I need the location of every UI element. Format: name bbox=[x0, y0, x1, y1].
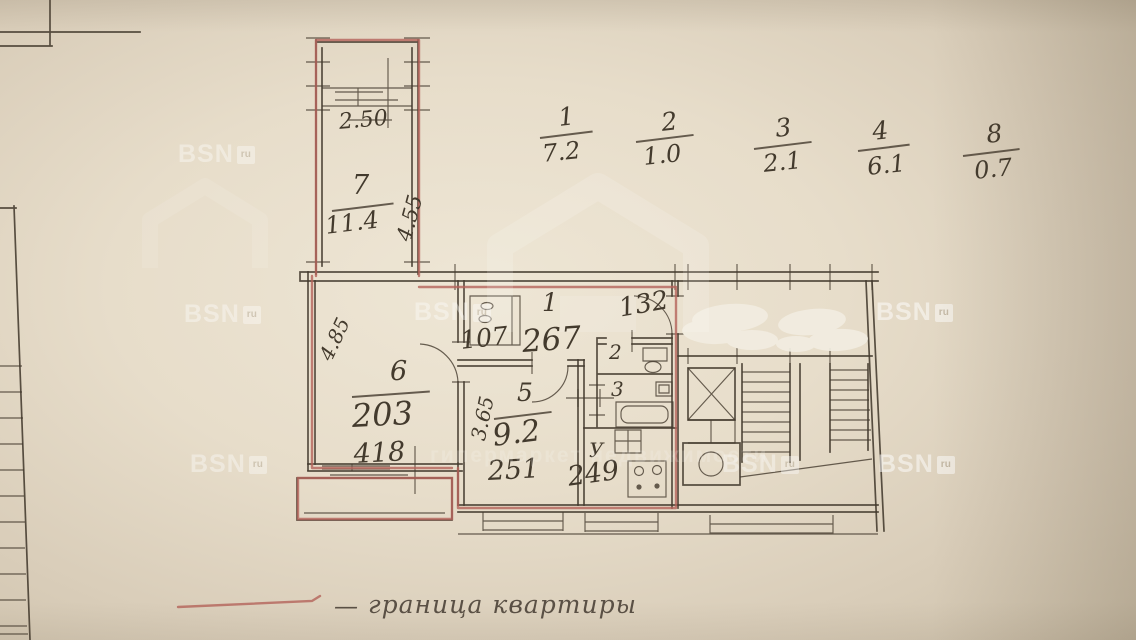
fraction-1-number: 1 bbox=[557, 103, 575, 130]
scanned-floor-plan-page: 1 7.2 2 1.0 3 2.1 4 6.1 8 0.7 2.50 7 11.… bbox=[0, 0, 1136, 640]
bsn-watermark: BSN ru bbox=[878, 452, 955, 477]
bsn-watermark: BSN ru bbox=[876, 300, 953, 325]
fraction-4-area: 6.1 bbox=[866, 151, 906, 179]
legend-dash: — bbox=[334, 592, 358, 620]
bsn-watermark-ru-icon: ru bbox=[237, 146, 255, 164]
toilet-bowl-icon bbox=[645, 362, 661, 373]
fraction-2-area: 1.0 bbox=[642, 141, 682, 169]
room6-width-dim: 418 bbox=[353, 438, 406, 468]
bottom-windows bbox=[458, 512, 878, 534]
hall-length-dim: 267 bbox=[521, 323, 582, 358]
fraction-4-number: 4 bbox=[871, 117, 889, 144]
room7-area: 11.4 bbox=[324, 207, 380, 237]
room6-area: 203 bbox=[351, 397, 414, 432]
bsn-watermark-text: BSN bbox=[178, 142, 234, 167]
fixtures bbox=[615, 348, 673, 497]
fraction-2-number: 2 bbox=[660, 108, 678, 135]
room7-number: 7 bbox=[352, 172, 369, 199]
room7-width-dim: 2.50 bbox=[338, 108, 389, 134]
fraction-3-area: 2.1 bbox=[762, 148, 802, 176]
sink-icon bbox=[656, 382, 672, 396]
hall-closet-dim: 107 bbox=[459, 323, 509, 353]
fraction-8-area: 0.7 bbox=[973, 155, 1013, 183]
fraction-3-number: 3 bbox=[774, 114, 792, 141]
stair-steps bbox=[742, 370, 871, 452]
room6-number: 6 bbox=[390, 358, 407, 385]
legend-boundary-sample-line bbox=[178, 596, 320, 607]
bsn-watermark: BSN ru bbox=[178, 142, 255, 167]
bsn-watermark: BSN ru bbox=[414, 300, 491, 325]
legend-label: граница квартиры bbox=[368, 590, 637, 619]
fraction-8-number: 8 bbox=[985, 120, 1003, 147]
bathroom-number: 3 bbox=[611, 379, 624, 399]
toilet-icon bbox=[643, 348, 667, 361]
balcony-walls bbox=[297, 478, 452, 520]
fraction-1-area: 7.2 bbox=[541, 138, 581, 166]
whiteout-patches bbox=[681, 301, 868, 352]
bsn-watermark: BSN ru bbox=[184, 302, 261, 327]
hall-number: 1 bbox=[542, 290, 558, 315]
bsn-tagline-watermark: гипермаркет недвижимости bbox=[430, 444, 768, 468]
wc-number: 2 bbox=[609, 342, 622, 362]
adjacent-building-outline bbox=[0, 0, 140, 640]
room5-number: 5 bbox=[517, 380, 533, 405]
bsn-watermark: BSN ru bbox=[190, 452, 267, 477]
